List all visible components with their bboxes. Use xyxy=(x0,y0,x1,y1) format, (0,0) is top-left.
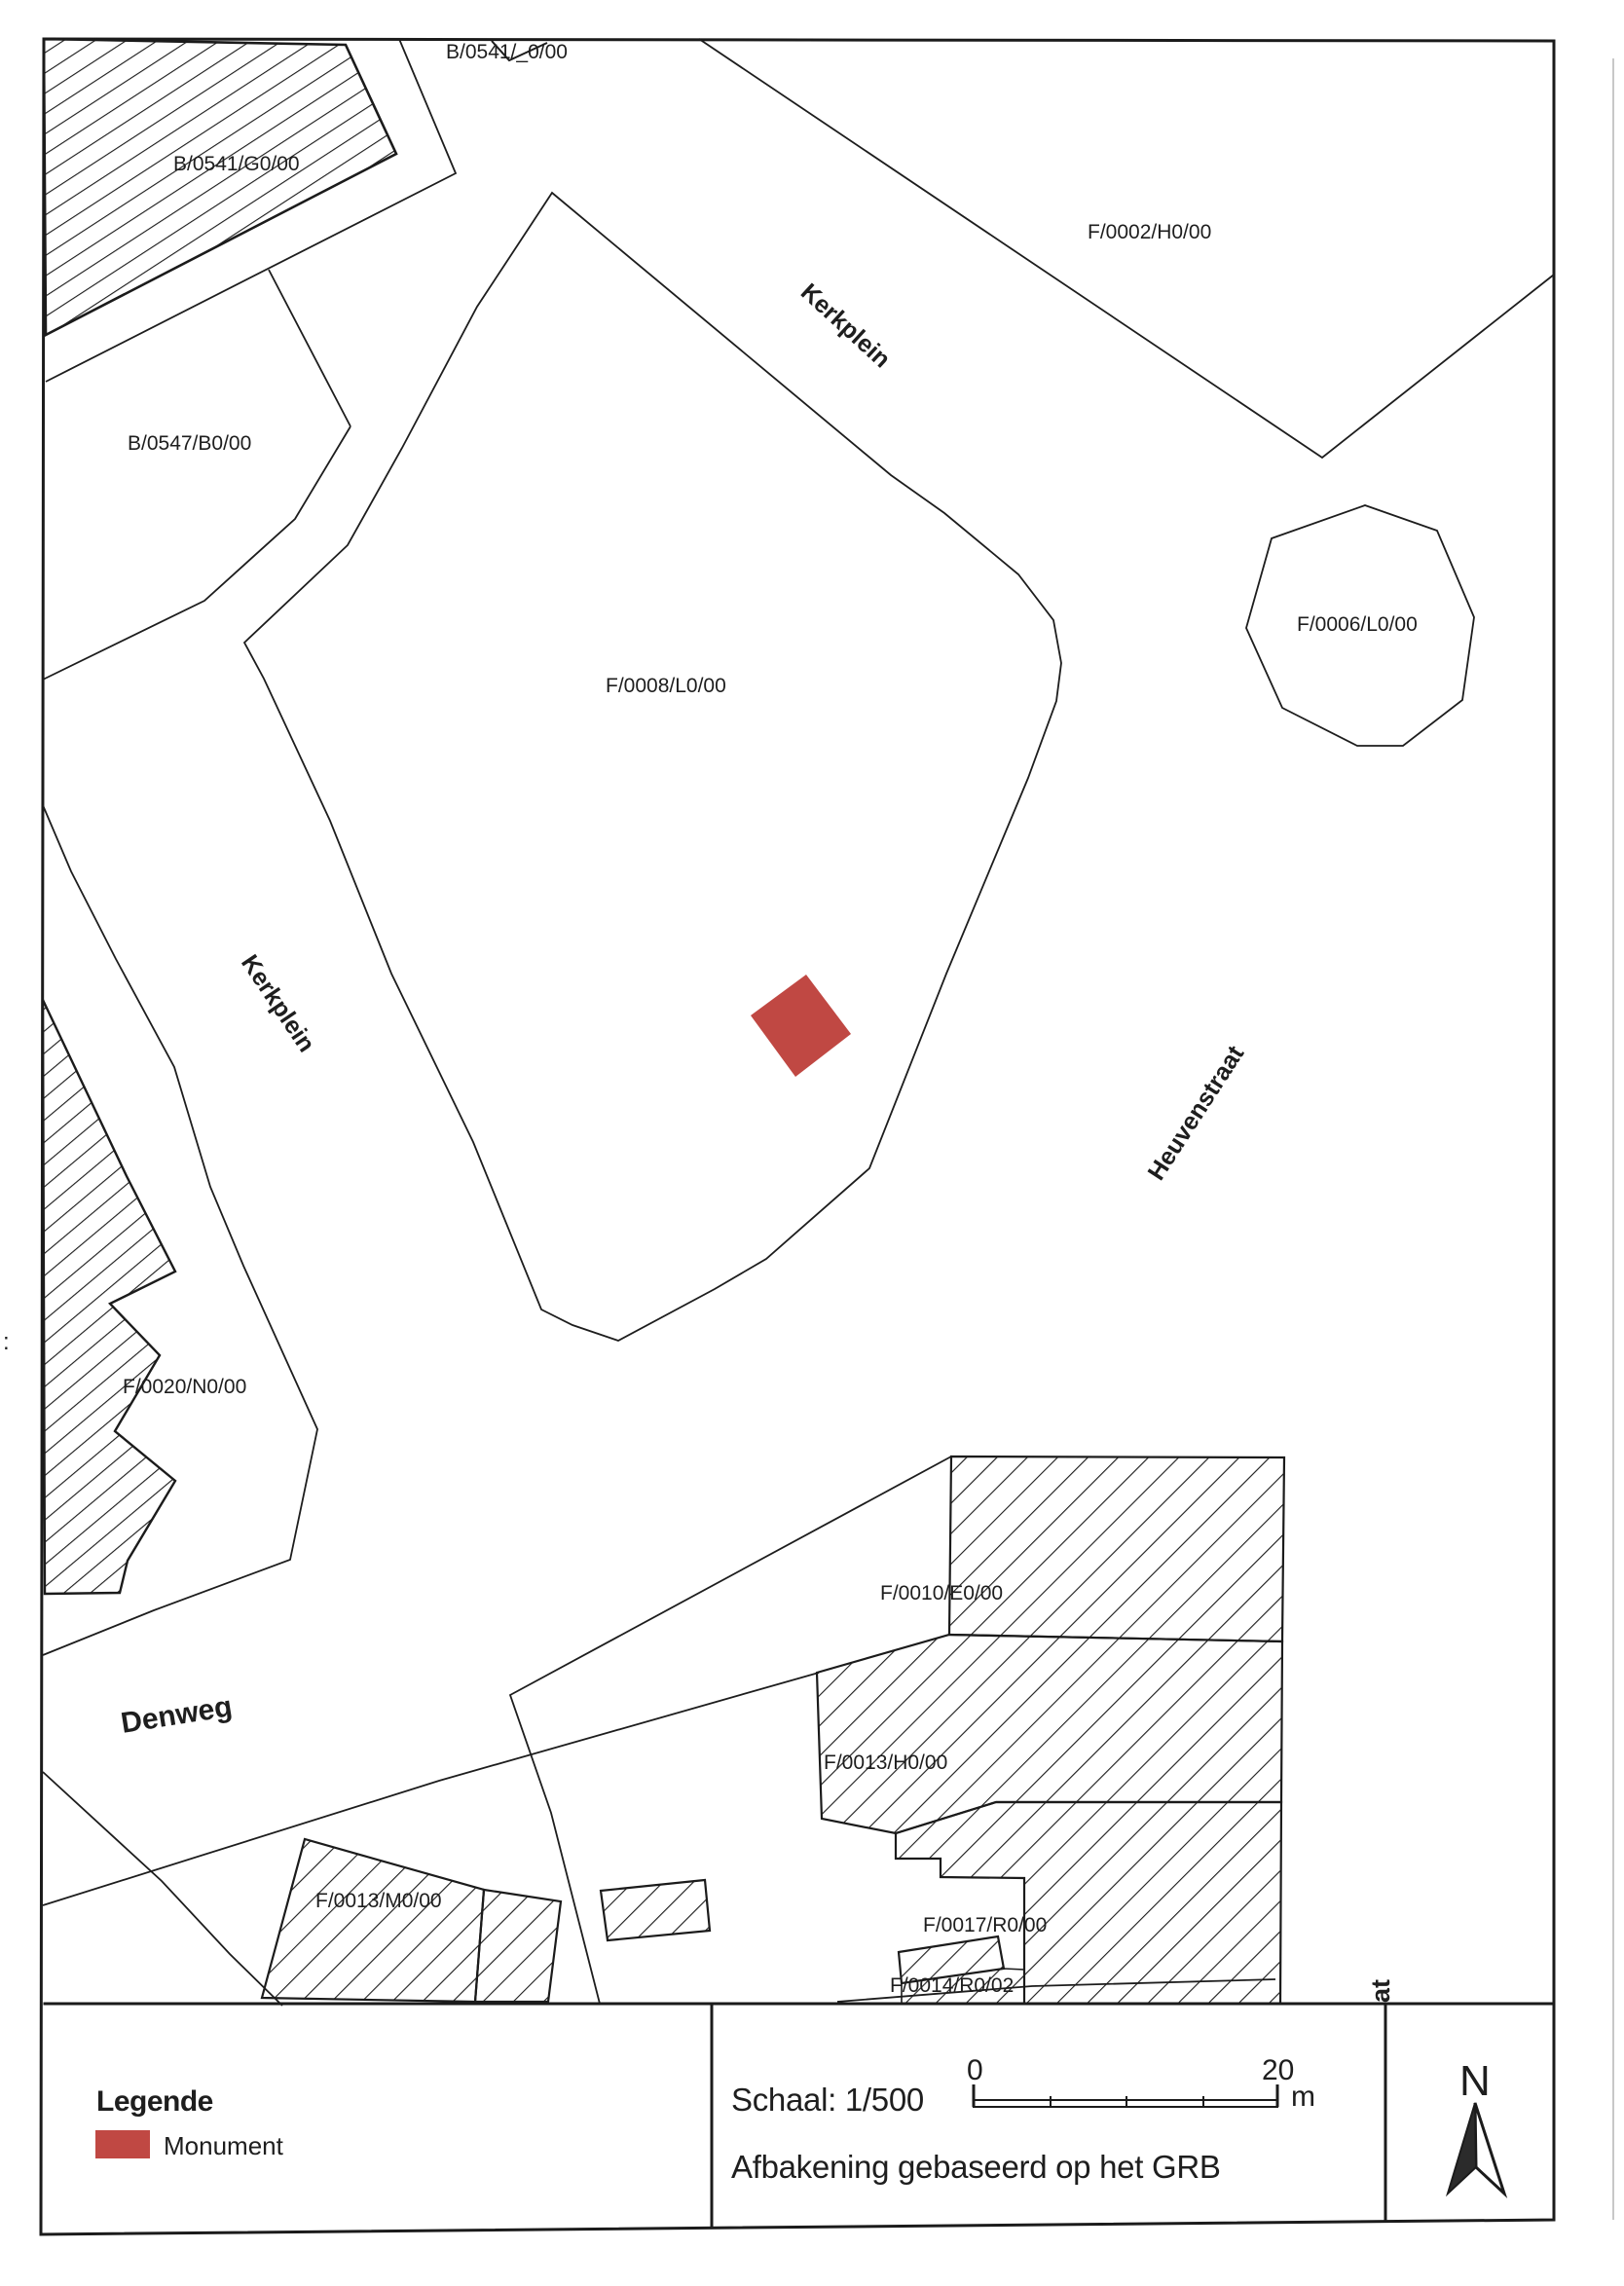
svg-text:Monument: Monument xyxy=(164,2131,284,2160)
svg-text:F/0017/R0/00: F/0017/R0/00 xyxy=(923,1914,1047,1936)
svg-text:B/0547/B0/00: B/0547/B0/00 xyxy=(128,432,251,455)
svg-text:Heuvenstraat: Heuvenstraat xyxy=(1143,1041,1250,1186)
svg-text:F/0010/E0/00: F/0010/E0/00 xyxy=(880,1582,1003,1604)
svg-text:B/0541/_0/00: B/0541/_0/00 xyxy=(446,41,568,63)
svg-text:m: m xyxy=(1291,2081,1315,2113)
svg-text:0: 0 xyxy=(967,2054,983,2086)
svg-text:Kerkplein: Kerkplein xyxy=(795,278,896,374)
svg-text:F/0013/H0/00: F/0013/H0/00 xyxy=(824,1751,947,1774)
svg-text:F/0020/N0/00: F/0020/N0/00 xyxy=(123,1376,246,1398)
svg-text::: : xyxy=(3,1329,10,1355)
svg-text:Denweg: Denweg xyxy=(119,1690,235,1740)
svg-text:at: at xyxy=(1366,1979,1395,2003)
svg-text:F/0008/L0/00: F/0008/L0/00 xyxy=(606,675,726,697)
svg-text:F/0002/H0/00: F/0002/H0/00 xyxy=(1088,221,1211,243)
svg-text:B/0541/G0/00: B/0541/G0/00 xyxy=(173,153,300,175)
svg-text:N: N xyxy=(1459,2057,1491,2105)
svg-text:Kerkplein: Kerkplein xyxy=(236,950,320,1057)
svg-text:F/0013/M0/00: F/0013/M0/00 xyxy=(315,1890,442,1912)
svg-text:Legende: Legende xyxy=(96,2085,213,2118)
svg-text:Schaal: 1/500: Schaal: 1/500 xyxy=(731,2082,924,2118)
svg-text:Afbakening gebaseerd op het GR: Afbakening gebaseerd op het GRB xyxy=(731,2149,1221,2185)
svg-text:F/0006/L0/00: F/0006/L0/00 xyxy=(1297,613,1418,636)
svg-text:F/0014/R0/02: F/0014/R0/02 xyxy=(890,1974,1014,1997)
svg-text:20: 20 xyxy=(1262,2054,1294,2086)
